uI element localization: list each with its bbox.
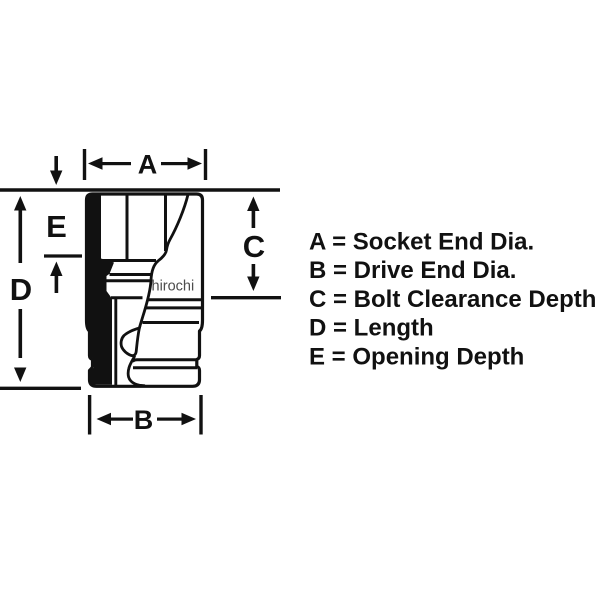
- svg-text:E = Opening Depth: E = Opening Depth: [309, 343, 524, 370]
- svg-text:C = Bolt Clearance Depth: C = Bolt Clearance Depth: [309, 286, 596, 313]
- svg-text:D = Length: D = Length: [309, 315, 434, 342]
- svg-text:E: E: [46, 209, 67, 244]
- svg-text:A: A: [138, 150, 158, 180]
- svg-text:A = Socket End Dia.: A = Socket End Dia.: [309, 229, 534, 256]
- svg-text:B = Drive End Dia.: B = Drive End Dia.: [309, 257, 516, 284]
- svg-text:hirochi: hirochi: [152, 279, 195, 295]
- svg-text:C: C: [243, 229, 265, 264]
- svg-text:D: D: [10, 272, 32, 307]
- svg-text:B: B: [134, 405, 154, 435]
